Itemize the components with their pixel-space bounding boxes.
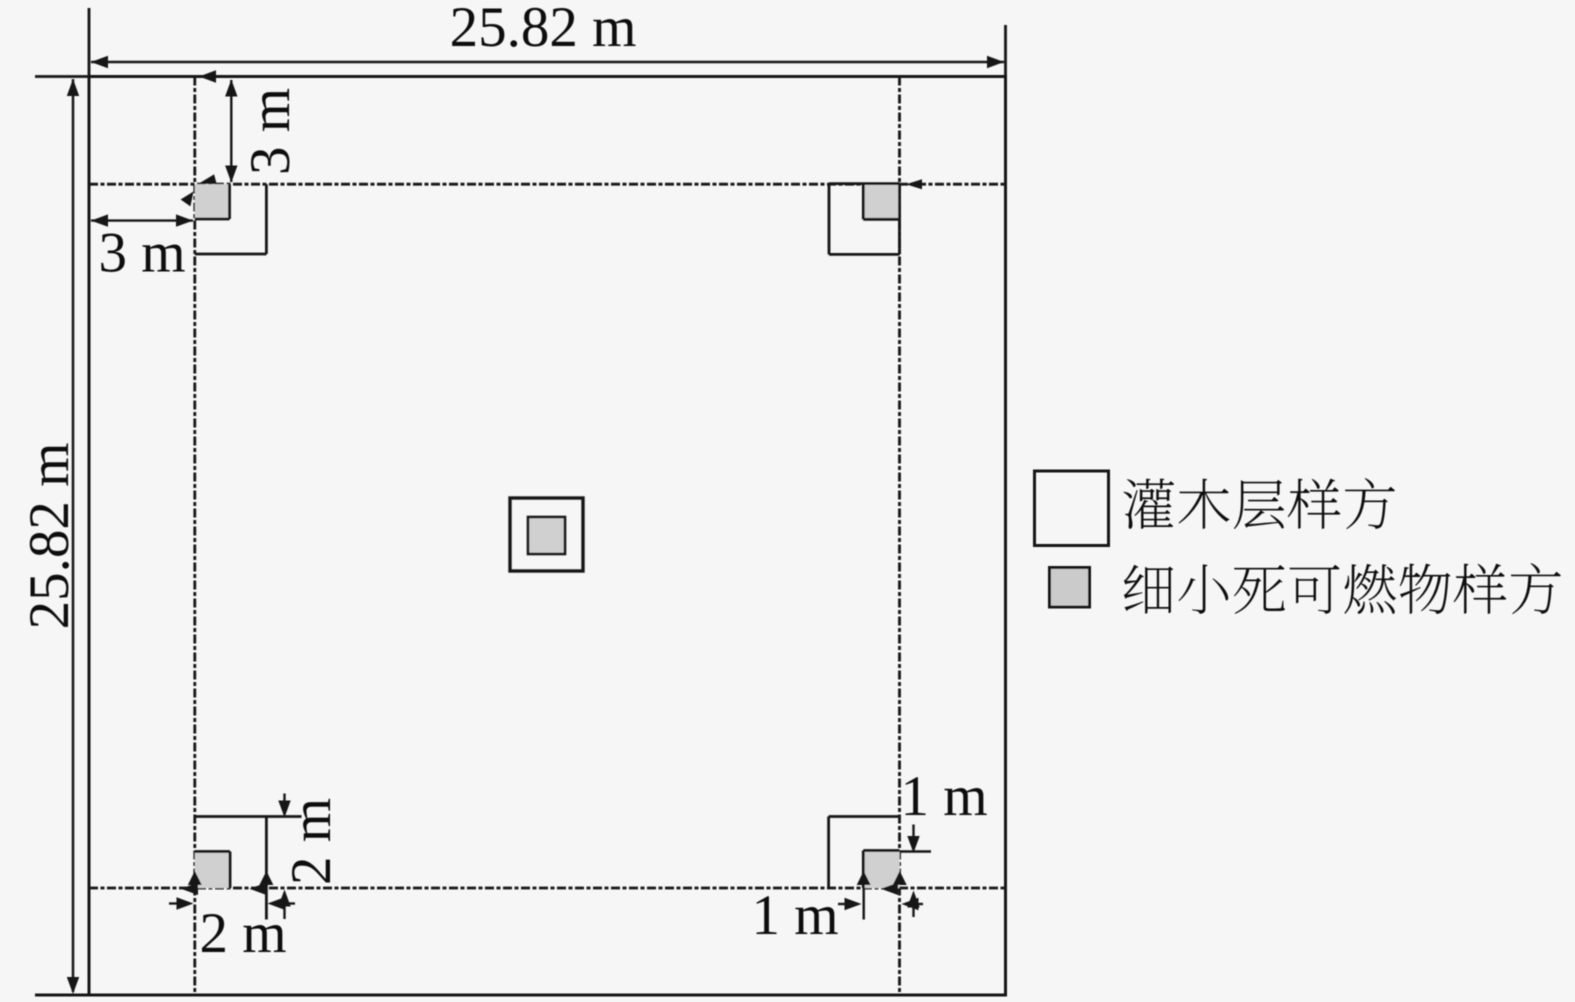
- svg-text:2 m: 2 m: [199, 902, 286, 965]
- svg-text:1 m: 1 m: [751, 884, 838, 947]
- svg-text:2 m: 2 m: [280, 798, 343, 885]
- svg-text:25.82 m: 25.82 m: [450, 0, 637, 59]
- svg-text:3 m: 3 m: [98, 222, 185, 285]
- svg-text:3 m: 3 m: [239, 88, 302, 175]
- svg-text:25.82 m: 25.82 m: [18, 443, 81, 630]
- svg-text:1 m: 1 m: [900, 765, 987, 828]
